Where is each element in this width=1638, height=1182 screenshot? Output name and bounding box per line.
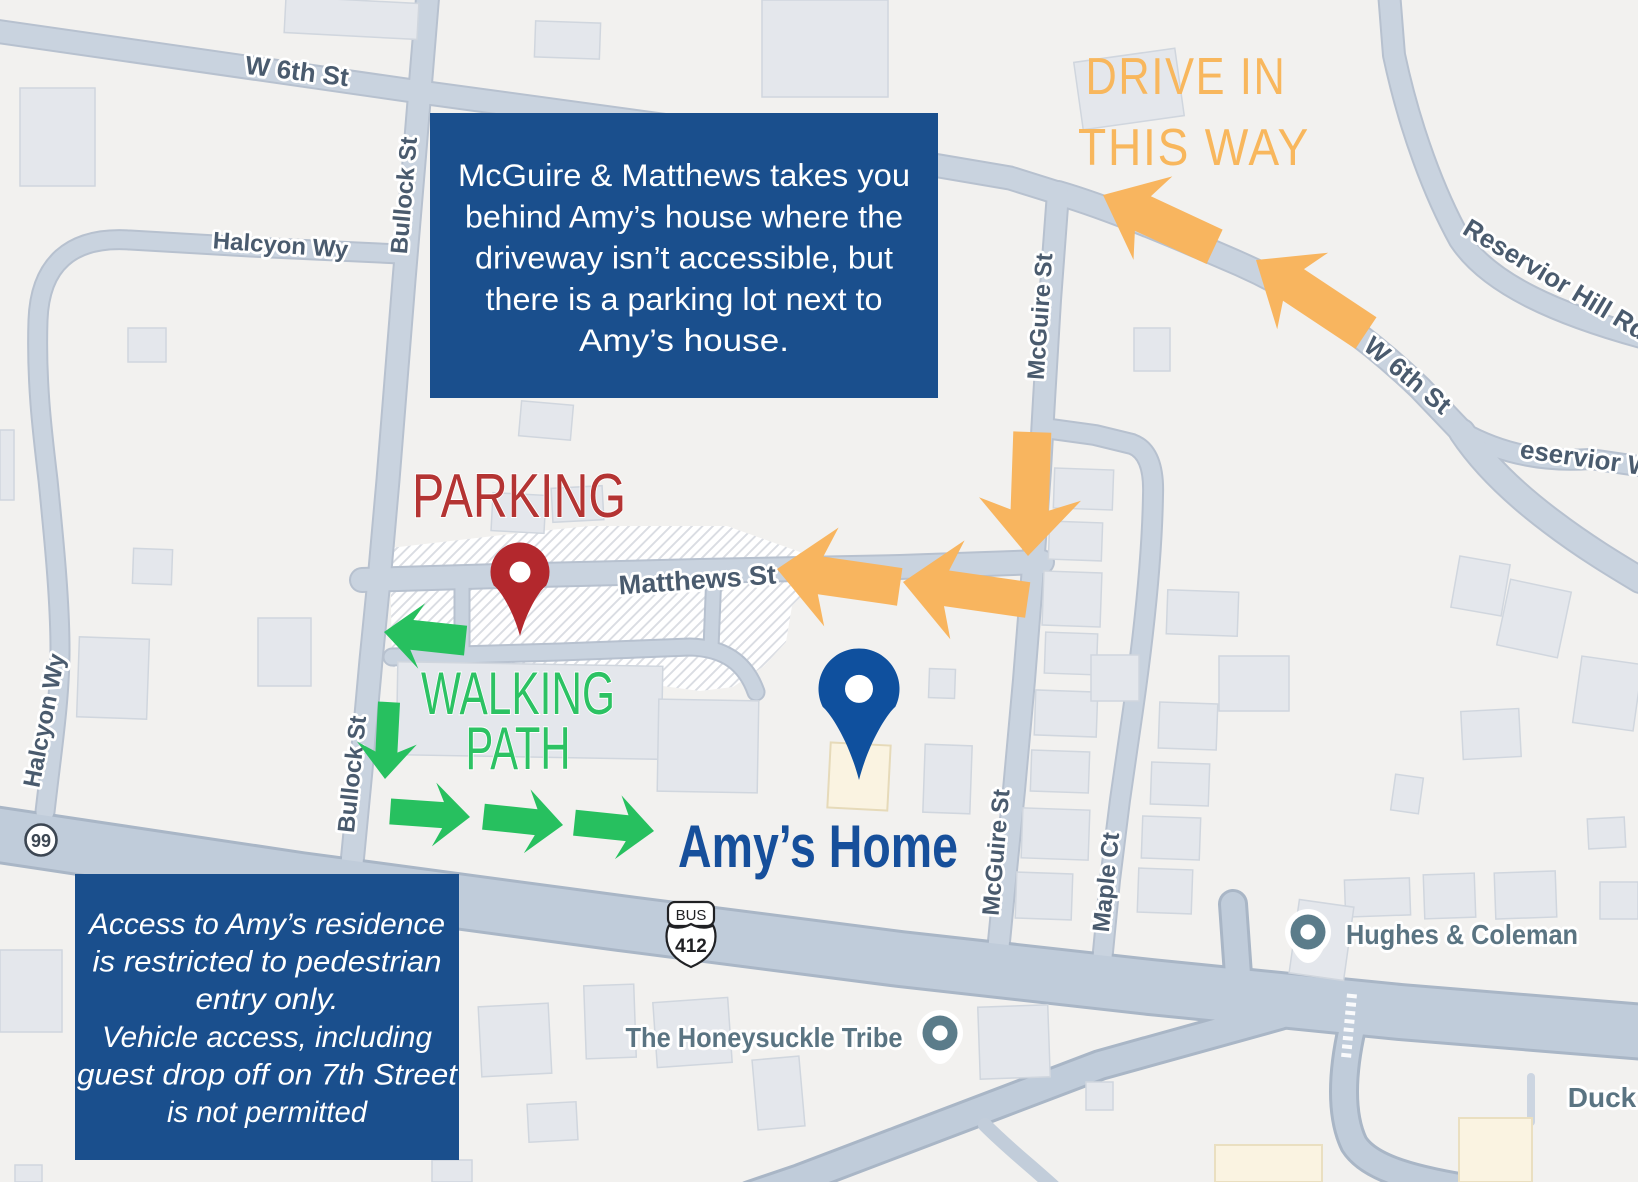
svg-text:Amy’s Home: Amy’s Home — [678, 813, 958, 880]
svg-text:PATH: PATH — [466, 715, 571, 782]
svg-text:Duck: Duck — [1568, 1082, 1637, 1113]
svg-text:PARKING: PARKING — [412, 462, 626, 531]
svg-text:412: 412 — [675, 936, 707, 957]
svg-text:99: 99 — [31, 831, 51, 851]
svg-text:BUS: BUS — [676, 907, 707, 924]
svg-text:Hughes & Coleman: Hughes & Coleman — [1346, 919, 1578, 950]
svg-text:The Honeysuckle Tribe: The Honeysuckle Tribe — [626, 1022, 903, 1053]
svg-text:DRIVE IN: DRIVE IN — [1086, 48, 1287, 106]
svg-text:THIS WAY: THIS WAY — [1078, 119, 1310, 177]
